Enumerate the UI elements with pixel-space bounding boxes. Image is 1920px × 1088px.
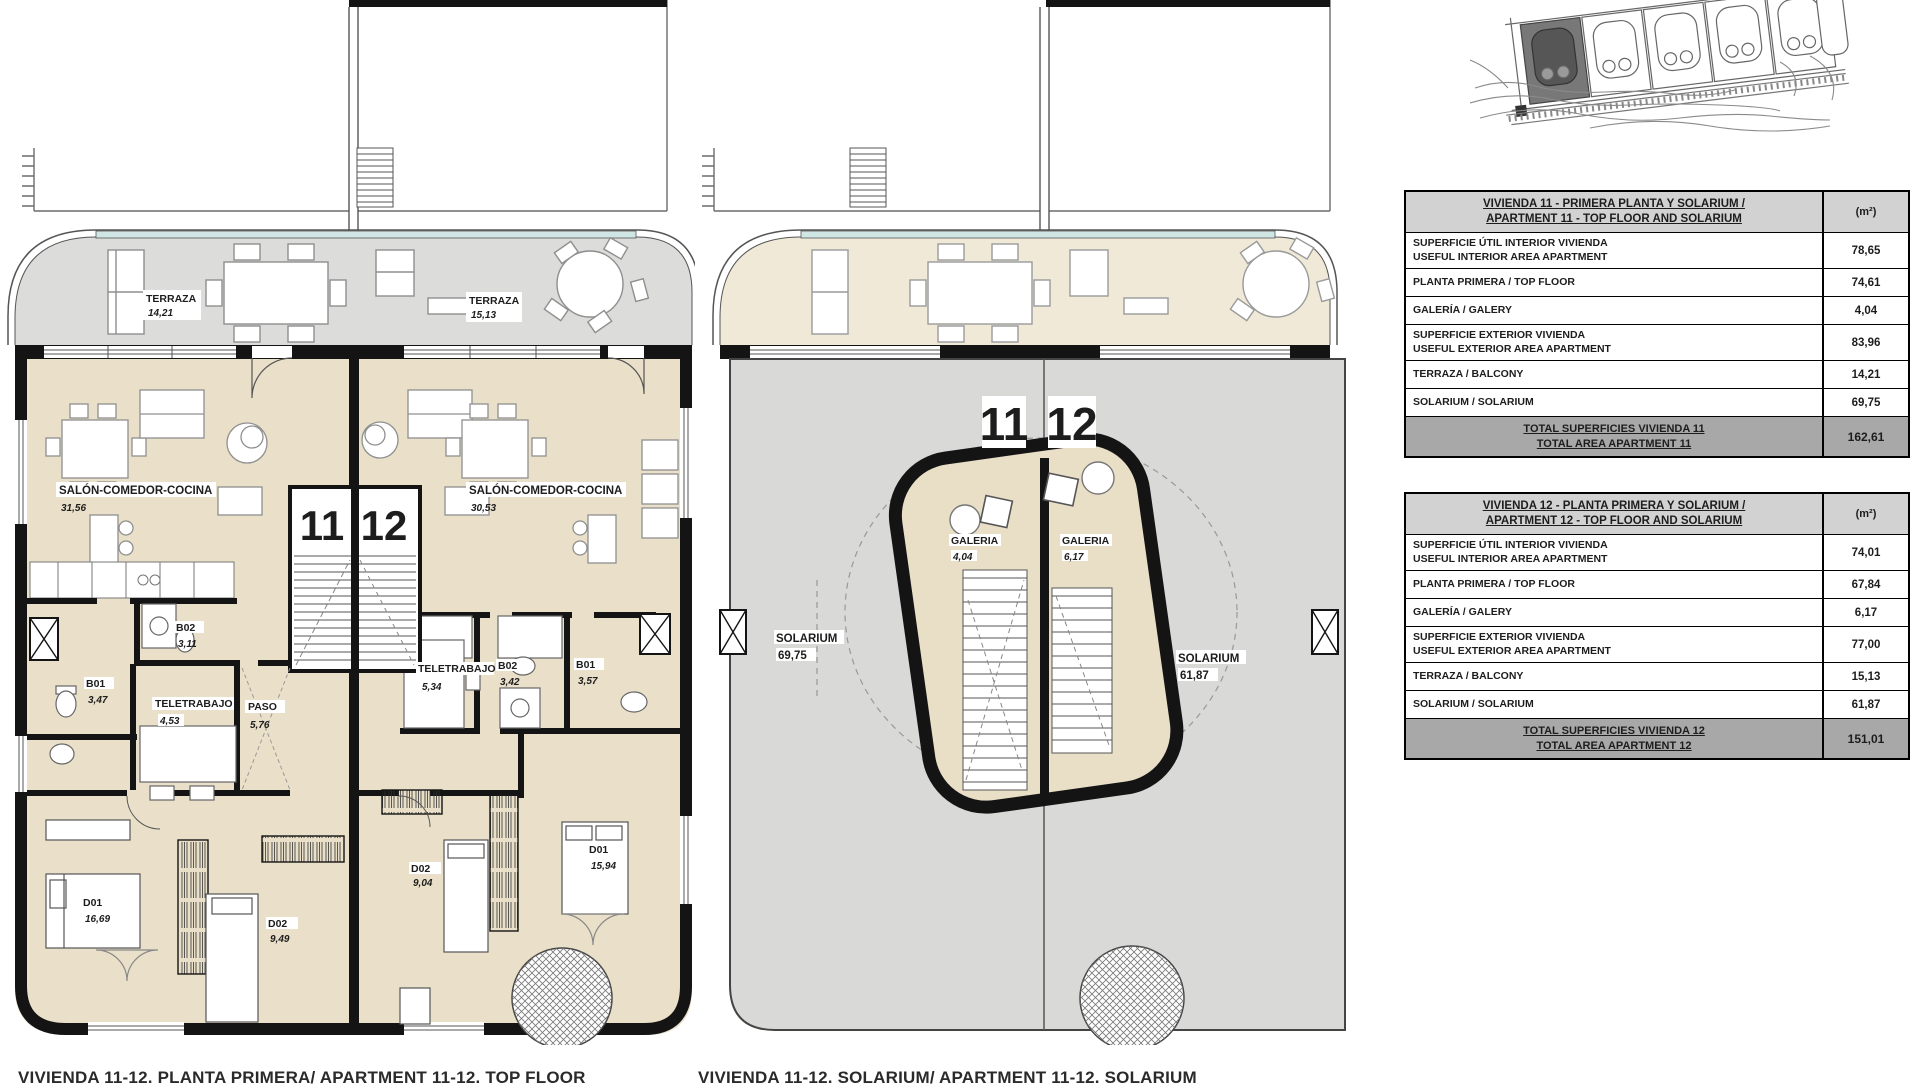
table-row: SUPERFICIE ÚTIL INTERIOR VIVIENDAUSEFUL …	[1406, 534, 1908, 570]
floor-plan-top-floor: TERRAZA 14,21 TERRAZA 15,13 SALÓN-COMEDO…	[0, 0, 695, 1045]
table-cell-value: 67,84	[1822, 571, 1908, 598]
room-area-teletrabajo-12: 5,34	[422, 682, 442, 693]
room-area-galeria-11: 4,04	[952, 552, 973, 563]
caption-solarium: VIVIENDA 11-12. SOLARIUM/ APARTMENT 11-1…	[698, 1068, 1197, 1088]
room-label-b01-11: B01	[86, 678, 105, 690]
table-cell-value: 78,65	[1822, 233, 1908, 268]
room-label-b02-12: B02	[498, 660, 517, 672]
unit-number-12: 12	[1046, 398, 1097, 450]
table-total-value: 151,01	[1822, 719, 1908, 758]
table-title-line2: APARTMENT 11 - TOP FLOOR AND SOLARIUM	[1486, 212, 1742, 227]
table-row: PLANTA PRIMERA / TOP FLOOR 67,84	[1406, 570, 1908, 598]
room-label-solarium-11: SOLARIUM	[776, 633, 837, 645]
table-row: SUPERFICIE ÚTIL INTERIOR VIVIENDAUSEFUL …	[1406, 232, 1908, 268]
room-area-solarium-11: 69,75	[778, 650, 807, 662]
paved-circle	[1080, 946, 1184, 1045]
table-row: SOLARIUM / SOLARIUM 69,75	[1406, 388, 1908, 416]
area-table-vivienda-11: VIVIENDA 11 - PRIMERA PLANTA Y SOLARIUM …	[1404, 190, 1910, 458]
room-area-salon-12: 30,53	[471, 503, 496, 514]
table-header: VIVIENDA 11 - PRIMERA PLANTA Y SOLARIUM …	[1406, 192, 1908, 232]
table-cell-value: 69,75	[1822, 389, 1908, 416]
room-area-d02-12: 9,04	[413, 878, 433, 889]
room-label-d01-11: D01	[83, 897, 102, 909]
table-row: TERRAZA / BALCONY 15,13	[1406, 662, 1908, 690]
table-cell-value: 83,96	[1822, 325, 1908, 360]
rooflines	[22, 0, 667, 211]
floor-plan-solarium: GALERIA 4,04 GALERIA 6,17 SOLARIUM 69,75…	[700, 0, 1355, 1045]
table-cell-value: 74,01	[1822, 535, 1908, 570]
table-cell-value: 6,17	[1822, 599, 1908, 626]
room-label-terraza-12: TERRAZA	[469, 295, 520, 307]
table-title-line1: VIVIENDA 11 - PRIMERA PLANTA Y SOLARIUM …	[1483, 197, 1745, 212]
table-row: SUPERFICIE EXTERIOR VIVIENDAUSEFUL EXTER…	[1406, 626, 1908, 662]
rooflines	[702, 0, 1330, 211]
table-row: PLANTA PRIMERA / TOP FLOOR 74,61	[1406, 268, 1908, 296]
room-label-d01-12: D01	[589, 844, 608, 856]
site-location-plan	[1470, 0, 1855, 135]
kitchen-counters	[30, 562, 234, 598]
site-unit-highlighted	[1520, 17, 1589, 104]
table-cell-value: 77,00	[1822, 627, 1908, 662]
room-area-teletrabajo-11: 4,53	[159, 716, 180, 727]
room-area-b01-12: 3,57	[578, 676, 598, 687]
site-units	[1582, 0, 1851, 97]
room-area-b02-11: 3,11	[178, 639, 197, 650]
party-wall-top-bar	[349, 0, 667, 7]
room-label-d02-12: D02	[411, 863, 430, 875]
glass-balustrade	[96, 231, 636, 238]
room-label-salon-11: SALÓN-COMEDOR-COCINA	[59, 484, 212, 497]
unit-number-12: 12	[361, 502, 408, 549]
room-label-b02-11: B02	[176, 622, 195, 634]
glass-balustrade	[801, 231, 1275, 238]
area-table-vivienda-12: VIVIENDA 12 - PLANTA PRIMERA Y SOLARIUM …	[1404, 492, 1910, 760]
table-cell-value: 61,87	[1822, 691, 1908, 718]
room-area-terraza-11: 14,21	[148, 308, 173, 319]
room-label-teletrabajo-12: TELETRABAJO	[418, 663, 496, 675]
room-area-galeria-12: 6,17	[1064, 552, 1084, 563]
room-label-solarium-12: SOLARIUM	[1178, 653, 1239, 665]
table-unit-header: (m²)	[1822, 192, 1908, 232]
table-cell-value: 14,21	[1822, 361, 1908, 388]
table-total-row: TOTAL SUPERFICIES VIVIENDA 11 TOTAL AREA…	[1406, 416, 1908, 456]
table-row: SOLARIUM / SOLARIUM 61,87	[1406, 690, 1908, 718]
room-area-b02-12: 3,42	[500, 677, 520, 688]
room-label-terraza-11: TERRAZA	[146, 293, 197, 305]
table-cell-value: 15,13	[1822, 663, 1908, 690]
room-area-d01-12: 15,94	[591, 861, 616, 872]
roof-stair-hatch	[850, 148, 886, 207]
table-unit-header: (m²)	[1822, 494, 1908, 534]
room-area-d02-11: 9,49	[270, 934, 290, 945]
room-label-teletrabajo-11: TELETRABAJO	[155, 698, 233, 710]
party-wall-top-bar	[1046, 0, 1330, 7]
room-label-b01-12: B01	[576, 659, 595, 671]
paved-circle	[512, 948, 612, 1045]
table-row: GALERÍA / GALERY 4,04	[1406, 296, 1908, 324]
room-label-galeria-11: GALERIA	[951, 535, 999, 547]
table-row: TERRAZA / BALCONY 14,21	[1406, 360, 1908, 388]
table-row: GALERÍA / GALERY 6,17	[1406, 598, 1908, 626]
room-area-paso-11: 5,76	[250, 720, 270, 731]
room-label-d02-11: D02	[268, 918, 287, 930]
party-wall-roof	[1040, 7, 1049, 237]
room-area-solarium-12: 61,87	[1180, 670, 1209, 682]
table-title-line2: APARTMENT 12 - TOP FLOOR AND SOLARIUM	[1486, 514, 1742, 529]
stair-core	[888, 431, 1185, 814]
room-area-salon-11: 31,56	[61, 503, 86, 514]
table-total-row: TOTAL SUPERFICIES VIVIENDA 12 TOTAL AREA…	[1406, 718, 1908, 758]
unit-number-11: 11	[980, 398, 1029, 450]
unit-number-11: 11	[300, 502, 344, 549]
room-label-salon-12: SALÓN-COMEDOR-COCINA	[469, 484, 622, 497]
table-header: VIVIENDA 12 - PLANTA PRIMERA Y SOLARIUM …	[1406, 494, 1908, 534]
room-area-terraza-12: 15,13	[471, 310, 496, 321]
table-row: SUPERFICIE EXTERIOR VIVIENDAUSEFUL EXTER…	[1406, 324, 1908, 360]
room-area-d01-11: 16,69	[85, 914, 110, 925]
room-label-paso-11: PASO	[248, 701, 277, 713]
table-title-line1: VIVIENDA 12 - PLANTA PRIMERA Y SOLARIUM …	[1483, 499, 1746, 514]
table-cell-value: 74,61	[1822, 269, 1908, 296]
table-cell-value: 4,04	[1822, 297, 1908, 324]
roof-stair-hatch	[357, 148, 393, 207]
room-area-b01-11: 3,47	[88, 695, 108, 706]
table-total-value: 162,61	[1822, 417, 1908, 456]
room-label-galeria-12: GALERIA	[1062, 535, 1110, 547]
caption-top-floor: VIVIENDA 11-12. PLANTA PRIMERA/ APARTMEN…	[18, 1068, 586, 1088]
